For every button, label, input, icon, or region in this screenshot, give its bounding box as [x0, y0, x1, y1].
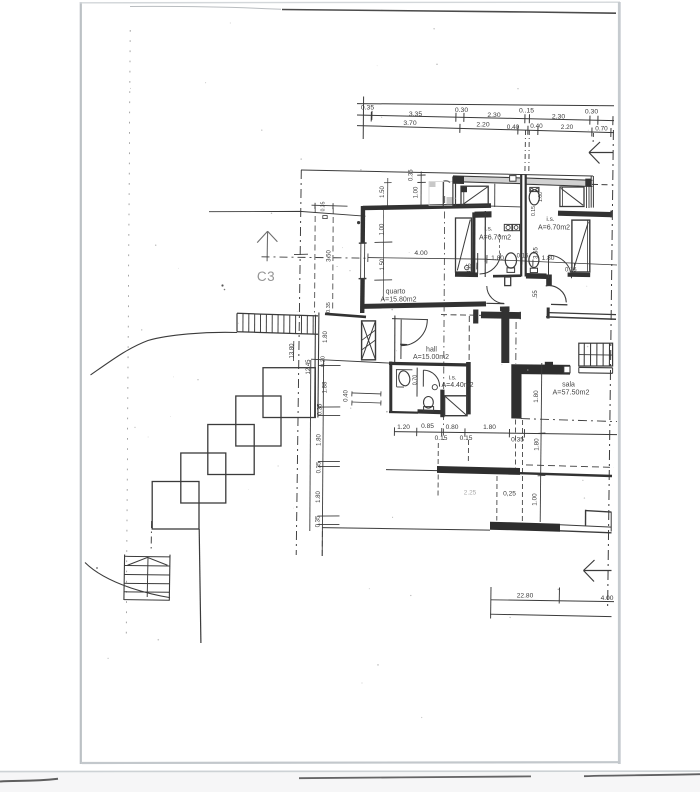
svg-text:i.s.: i.s.: [449, 375, 457, 382]
svg-text:1.80: 1.80: [542, 255, 555, 262]
svg-text:22.80: 22.80: [517, 593, 534, 600]
svg-text:0.35: 0.35: [361, 105, 374, 112]
svg-text:1.00: 1.00: [413, 186, 419, 198]
svg-text:2.20: 2.20: [561, 124, 574, 131]
svg-text:0.40: 0.40: [530, 123, 543, 130]
svg-text:C3: C3: [257, 269, 275, 284]
svg-text:1.50: 1.50: [380, 258, 386, 270]
svg-text:1.20: 1.20: [397, 424, 410, 431]
svg-text:0.80: 0.80: [446, 424, 459, 431]
svg-text:A=15.80m2: A=15.80m2: [381, 297, 417, 304]
svg-text:1.80: 1.80: [534, 438, 541, 451]
svg-text:4.00: 4.00: [601, 595, 614, 602]
svg-text:0,25: 0,25: [503, 491, 516, 498]
svg-text:12.45: 12.45: [306, 359, 312, 375]
svg-text:0.40: 0.40: [507, 124, 520, 131]
svg-text:0.15: 0.15: [517, 254, 529, 260]
svg-text:A=6.70m2: A=6.70m2: [479, 235, 511, 242]
svg-text:hall: hall: [426, 347, 437, 354]
svg-text:i.s.: i.s.: [484, 226, 492, 233]
svg-text:0.20: 0.20: [320, 356, 326, 367]
svg-text:3.50: 3.50: [327, 250, 333, 262]
svg-text:1.88: 1.88: [322, 381, 328, 393]
svg-text:1.80: 1.80: [316, 491, 322, 503]
svg-text:1.00: 1.00: [531, 493, 538, 506]
svg-text:0..15: 0..15: [519, 108, 534, 115]
svg-text:0.30: 0.30: [585, 109, 598, 116]
svg-text:A=4.40m2: A=4.40m2: [441, 382, 473, 389]
svg-text:1.80: 1.80: [533, 390, 540, 403]
svg-text:2.20: 2.20: [476, 122, 489, 129]
svg-text:A=57.50m2: A=57.50m2: [553, 388, 590, 397]
svg-text:0.30: 0.30: [455, 107, 468, 114]
svg-text:quarto: quarto: [386, 289, 406, 296]
svg-text:3.70: 3.70: [403, 120, 416, 127]
svg-text:0.35: 0.35: [326, 302, 332, 313]
svg-text:.55: .55: [533, 290, 539, 299]
svg-text:0.35: 0.35: [321, 201, 327, 211]
svg-text:2.30: 2.30: [552, 114, 565, 121]
svg-text:1.00: 1.00: [538, 192, 544, 202]
svg-text:0.35: 0.35: [409, 169, 415, 181]
svg-text:0.85: 0.85: [421, 423, 434, 430]
svg-text:1.00: 1.00: [380, 223, 386, 235]
svg-text:4.00: 4.00: [414, 250, 427, 257]
svg-text:2.25: 2.25: [464, 490, 477, 497]
svg-text:1.50: 1.50: [380, 186, 386, 198]
svg-text:0.70: 0.70: [412, 375, 418, 386]
svg-text:1.80: 1.80: [491, 255, 504, 262]
svg-text:0.15: 0.15: [460, 435, 473, 442]
svg-text:0.70: 0.70: [595, 126, 608, 133]
svg-text:1.80: 1.80: [483, 424, 496, 431]
svg-text:0.15: 0.15: [435, 435, 448, 442]
svg-text:3.55: 3.55: [534, 247, 540, 259]
svg-text:1.80: 1.80: [323, 331, 329, 343]
svg-text:1.80: 1.80: [317, 434, 323, 446]
svg-text:0.40: 0.40: [343, 390, 349, 402]
svg-text:0.35: 0.35: [316, 461, 322, 473]
svg-text:0.35: 0.35: [316, 515, 322, 527]
svg-text:A=6.70m2: A=6.70m2: [538, 225, 570, 232]
svg-text:0.15: 0.15: [531, 206, 537, 216]
svg-text:2.30: 2.30: [487, 112, 500, 119]
svg-text:3.35: 3.35: [409, 111, 422, 118]
svg-text:13.80: 13.80: [290, 343, 296, 359]
svg-text:i.s.: i.s.: [546, 216, 554, 223]
